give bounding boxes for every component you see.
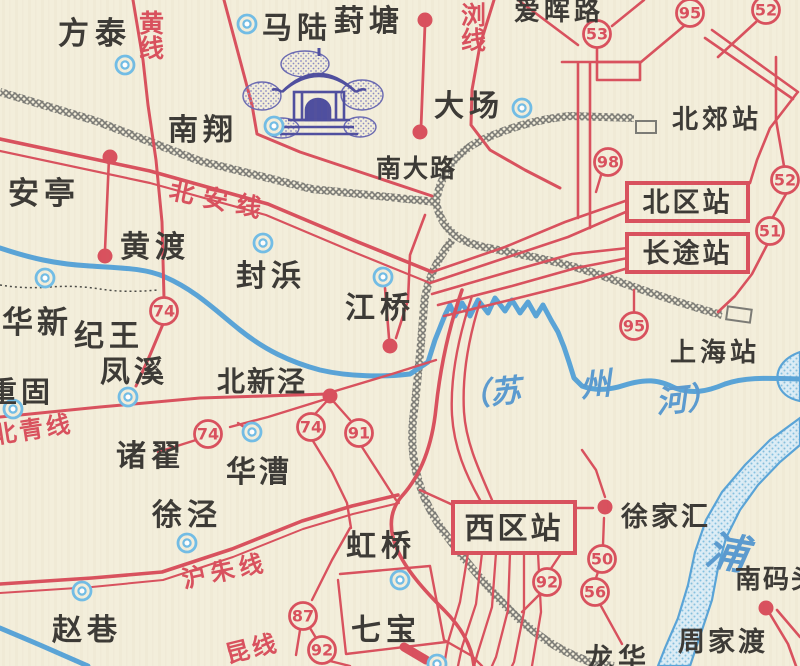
map-svg: 北区站长途站西区站 539552985251957474749187925092… xyxy=(0,0,800,666)
scanned-map-canvas: 北区站长途站西区站 539552985251957474749187925092… xyxy=(0,0,800,666)
paper-texture-overlay xyxy=(0,0,800,666)
